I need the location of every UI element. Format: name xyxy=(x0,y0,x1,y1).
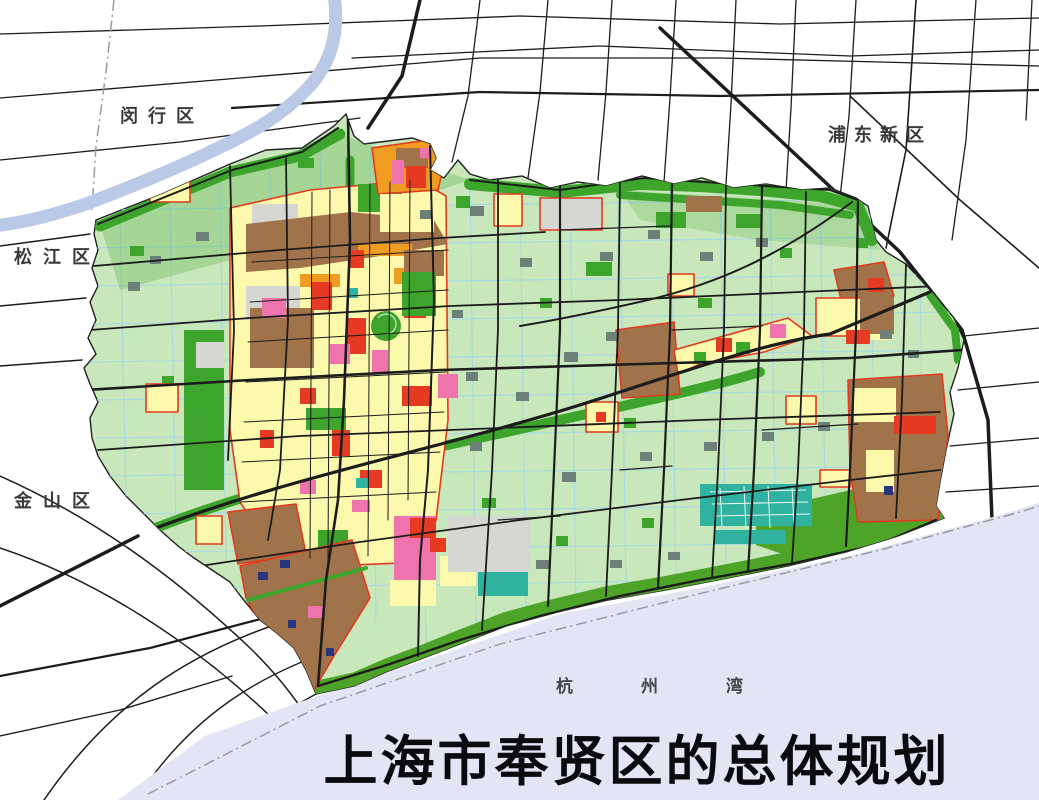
parcel-utility xyxy=(258,572,268,580)
parcel-public xyxy=(372,350,388,374)
parcel-commercial xyxy=(402,386,432,406)
park xyxy=(130,246,144,256)
parcel-utility xyxy=(280,560,290,568)
parcel-industrial xyxy=(686,196,722,212)
parcel-utility xyxy=(326,648,334,656)
parcel-utility xyxy=(884,486,893,495)
label-hangzhou-bay: 杭州湾 xyxy=(556,676,811,696)
park xyxy=(586,262,612,276)
parcel-commercial xyxy=(596,412,606,422)
label-pudong-district: 浦东新区 xyxy=(828,124,932,145)
planning-map: 闵行区 浦东新区 松江区 金山区 杭州湾 上海市奉贤区的总体规划 xyxy=(0,0,1039,800)
parcel-residential xyxy=(854,388,896,422)
parcel-commercial xyxy=(868,278,884,292)
parcel-commercial xyxy=(406,166,426,188)
park xyxy=(736,214,762,228)
parcel-commercial xyxy=(430,538,446,552)
parcel-residential xyxy=(866,450,894,492)
parcel-public xyxy=(392,160,404,184)
map-title: 上海市奉贤区的总体规划 xyxy=(324,732,951,792)
park xyxy=(298,158,314,168)
label-jinshan-district: 金山区 xyxy=(13,490,101,511)
parcel-reserve xyxy=(540,198,602,230)
label-songjiang-district: 松江区 xyxy=(14,246,101,267)
parcel-utility xyxy=(288,620,296,628)
parcel-residential xyxy=(390,580,436,606)
parcel-public xyxy=(352,500,370,512)
parcel-commercial xyxy=(846,330,870,344)
park xyxy=(642,518,654,528)
parcel-public xyxy=(438,374,458,398)
park xyxy=(456,196,470,208)
parcel-commercial xyxy=(300,388,316,404)
park xyxy=(556,536,568,546)
parcel-residential xyxy=(196,516,222,544)
park xyxy=(780,248,792,258)
parcel-special xyxy=(348,288,358,298)
parcel-public xyxy=(770,324,786,338)
parcel-residential xyxy=(820,470,850,487)
parcel-residential xyxy=(668,274,694,296)
parcel-residential xyxy=(146,384,178,412)
circular-park xyxy=(371,311,401,341)
map-canvas: 闵行区 浦东新区 松江区 金山区 杭州湾 上海市奉贤区的总体规划 xyxy=(0,0,1039,800)
park xyxy=(698,298,712,308)
parcel-reserve xyxy=(196,342,224,368)
label-minhang-district: 闵行区 xyxy=(120,105,204,126)
parcel-special xyxy=(356,478,368,488)
parcel-public xyxy=(308,606,324,618)
